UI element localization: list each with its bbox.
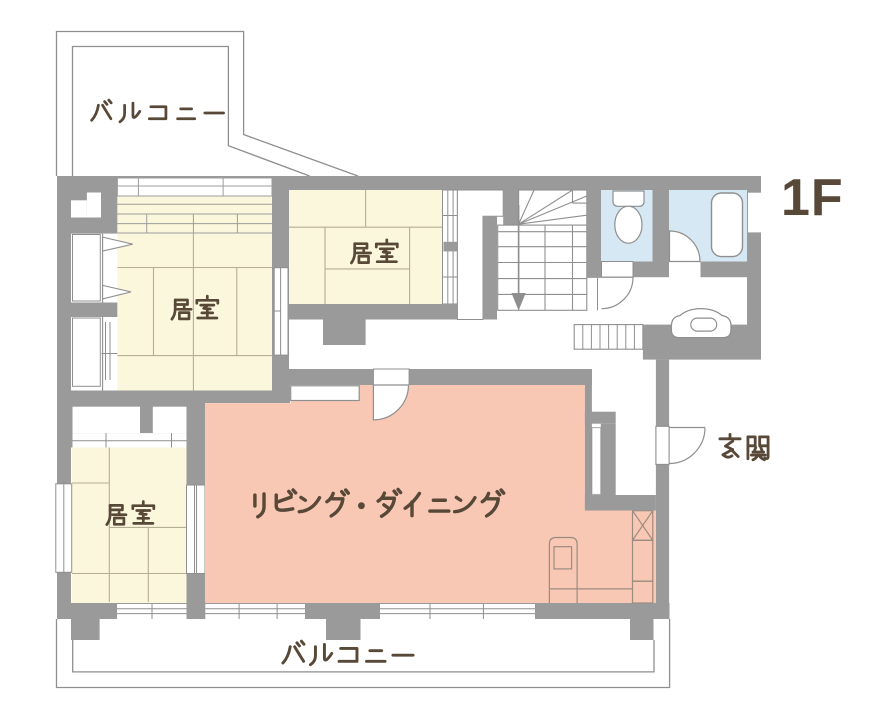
svg-text:1F: 1F (781, 169, 844, 227)
